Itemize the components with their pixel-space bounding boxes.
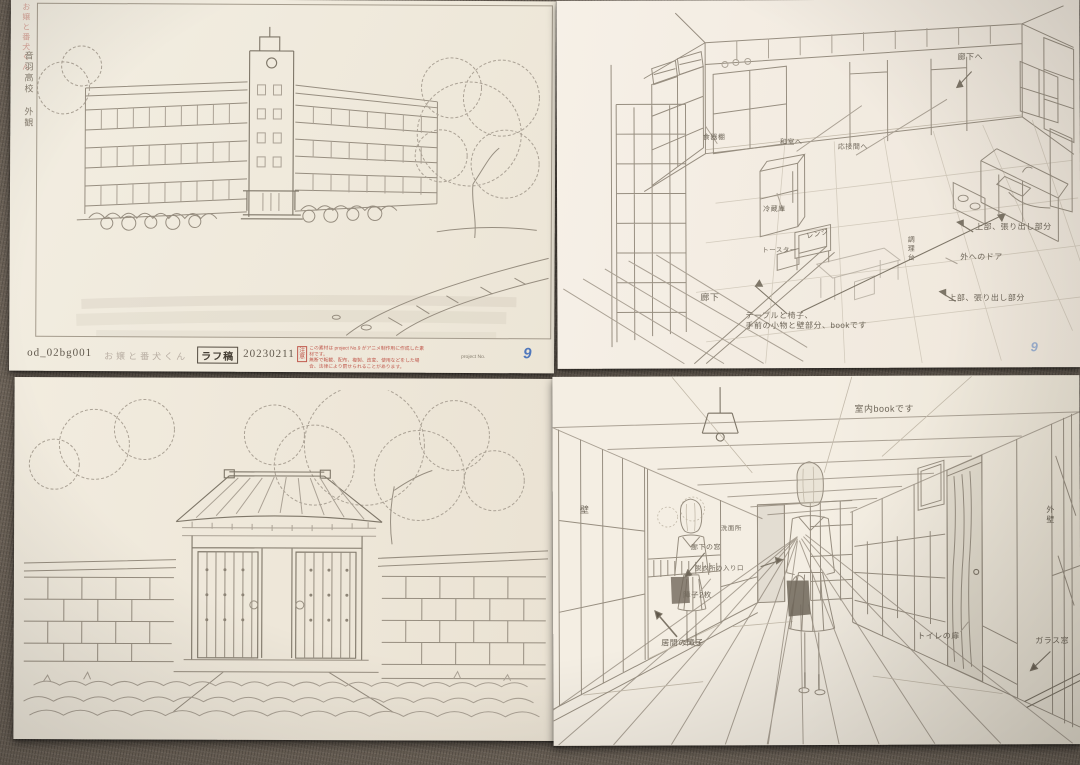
label-interior-book: 室内bookです xyxy=(854,402,914,415)
copyright-notice: 注意 この素材は project No.9 がアニメ制作用に作成した素材です。 … xyxy=(297,346,455,377)
label-hall-window: 廊下の窓 xyxy=(691,542,721,552)
label-to-hallway: 廊下へ xyxy=(958,51,984,62)
stage-stamp: ラフ稿 xyxy=(197,347,238,364)
label-toaster: トースター xyxy=(762,244,797,254)
label-hallway: 廊下 xyxy=(700,290,719,303)
work-title: お嬢と番犬くん xyxy=(104,349,188,362)
kitchen-sketch xyxy=(556,0,1080,369)
label-shoji-two: 障子2枚 xyxy=(683,589,712,600)
sheet-school-exterior: お嬢と番犬くん 音羽高校 外観 xyxy=(9,0,556,373)
date: 20230211 xyxy=(243,348,295,360)
gate-sketch xyxy=(23,389,548,721)
label-cupboard: 食器棚 xyxy=(703,132,726,142)
label-to-drawing-room: 応接間へ xyxy=(838,142,868,152)
label-toilet-door: トイレの扉 xyxy=(917,631,960,642)
sheet-hallway-interior: 室内bookです 壁 洗面所 廊下の窓 脱衣所の入り口 障子2枚 居間の障子 ト… xyxy=(552,375,1080,746)
label-fridge: 冷蔵庫 xyxy=(763,204,786,214)
label-outer-wall: 外壁 xyxy=(1045,505,1056,525)
label-counter: 調理台 xyxy=(905,236,915,263)
studio-name: project No. xyxy=(461,354,485,360)
side-location-label: 音羽高校 xyxy=(22,51,35,95)
side-view-label: 外観 xyxy=(22,107,35,129)
sheet-gate-exterior xyxy=(13,377,560,741)
cut-number: od_02bg001 xyxy=(27,347,92,359)
sheet-kitchen-interior: 廊下へ 食器棚 和室へ 応接間へ 冷蔵庫 レンジ トースター 調理台 上部、張り… xyxy=(556,0,1080,369)
label-dressing-entrance: 脱衣所の入り口 xyxy=(695,562,744,572)
label-washroom: 洗面所 xyxy=(721,522,742,532)
label-to-washitsu: 和室へ xyxy=(780,137,803,147)
label-upper-overhang-2: 上部、張り出し部分 xyxy=(948,292,1025,303)
label-wall: 壁 xyxy=(580,503,590,516)
photo-of-layout-sheets: お嬢と番犬くん 音羽高校 外観 xyxy=(0,0,1080,765)
notice-text: この素材は project No.9 がアニメ制作用に作成した素材です。 無断で… xyxy=(309,346,426,371)
label-glass-window: ガラス窓 xyxy=(1035,635,1069,646)
school-sketch xyxy=(36,4,552,339)
note-table-chairs-line2: 手前の小物と壁部分、bookです xyxy=(745,320,866,331)
hallway-sketch xyxy=(552,375,1080,746)
label-door-outside: 外へのドア xyxy=(960,251,1003,262)
label-living-shoji: 居間の障子 xyxy=(661,637,704,648)
project-no9-logo-icon: 9 xyxy=(1031,339,1038,354)
drawing-frame xyxy=(35,3,553,340)
title-block: od_02bg001 お嬢と番犬くん ラフ稿 20230211 注意 この素材は… xyxy=(9,343,554,370)
project-no9-logo-icon: 9 xyxy=(523,345,531,362)
notice-stamp: 注意 xyxy=(297,346,307,362)
label-upper-overhang-1: 上部、張り出し部分 xyxy=(975,221,1052,232)
